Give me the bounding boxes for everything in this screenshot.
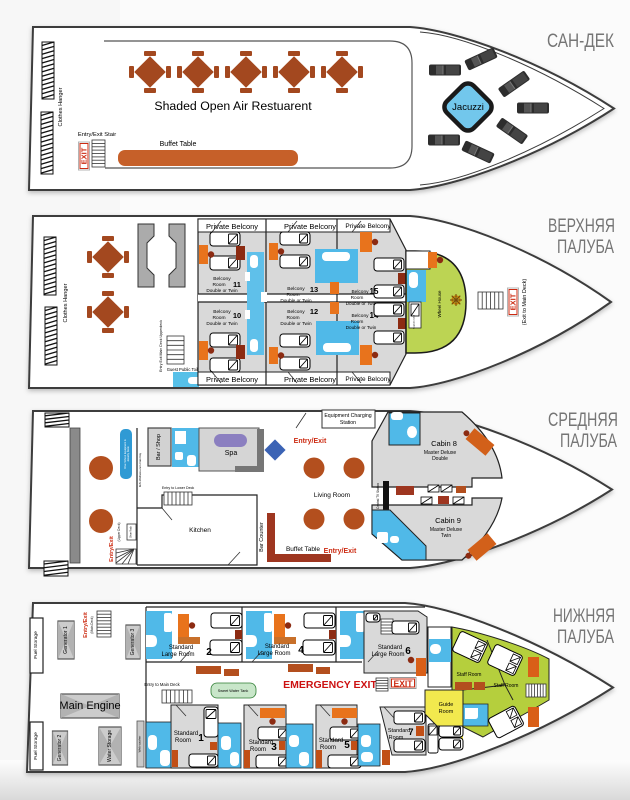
- svg-text:Private Belcony: Private Belcony: [345, 376, 391, 383]
- svg-text:Entry/Exit: Entry/Exit: [294, 438, 327, 445]
- svg-text:Living Room: Living Room: [314, 492, 350, 499]
- svg-text:Kitchen: Kitchen: [189, 527, 211, 534]
- svg-text:15: 15: [370, 287, 379, 296]
- svg-text:Fuel Storage: Fuel Storage: [33, 732, 39, 760]
- svg-text:Room: Room: [250, 747, 266, 753]
- svg-text:Standard: Standard: [319, 738, 343, 744]
- svg-text:Belcony: Belcony: [287, 309, 305, 315]
- svg-text:Shoe Rack: Shoe Rack: [130, 525, 133, 537]
- svg-text:Room: Room: [439, 709, 454, 715]
- svg-text:Belcony: Belcony: [213, 309, 231, 315]
- svg-text:Double or Twin: Double or Twin: [280, 321, 312, 326]
- svg-text:Entry/Exit: Entry/Exit: [83, 612, 89, 638]
- svg-text:Generator 1: Generator 1: [63, 626, 69, 654]
- svg-text:Wheel House: Wheel House: [437, 290, 442, 318]
- svg-text:Captains toilet: Captains toilet: [413, 315, 416, 329]
- svg-text:Standard: Standard: [388, 728, 410, 734]
- svg-text:Main Engine: Main Engine: [59, 700, 120, 712]
- svg-text:10: 10: [233, 311, 241, 320]
- svg-text:3: 3: [271, 742, 277, 753]
- svg-text:Jacuzzi: Jacuzzi: [452, 102, 484, 113]
- svg-text:Entry/Exit: Entry/Exit: [324, 548, 357, 555]
- svg-text:Spa: Spa: [225, 450, 238, 457]
- svg-text:НИЖНЯЯ: НИЖНЯЯ: [553, 605, 615, 627]
- svg-text:Belcony: Belcony: [351, 313, 369, 319]
- svg-text:Staff Room: Staff Room: [457, 672, 482, 678]
- svg-text:(Exit to Main Deck): (Exit to Main Deck): [522, 279, 528, 326]
- svg-text:13: 13: [310, 285, 318, 294]
- svg-text:Large Room: Large Room: [161, 652, 194, 658]
- svg-text:Private Belcony: Private Belcony: [206, 375, 258, 384]
- svg-text:САН-ДЕК: САН-ДЕК: [547, 30, 615, 52]
- svg-text:Standard: Standard: [169, 645, 193, 651]
- svg-text:Buffet Table: Buffet Table: [160, 141, 197, 148]
- svg-text:EMERGENCY EXIT: EMERGENCY EXIT: [283, 679, 377, 691]
- svg-text:Double or Twin: Double or Twin: [346, 325, 377, 330]
- svg-text:Generator 2: Generator 2: [57, 734, 63, 761]
- svg-text:Cabin 9: Cabin 9: [435, 516, 461, 525]
- svg-text:Jewelry Desk: Jewelry Desk: [126, 446, 130, 462]
- svg-text:Clothes Hanger: Clothes Hanger: [63, 283, 69, 322]
- svg-text:Entry/Exit: Entry/Exit: [109, 536, 115, 562]
- svg-text:Web washer: Web washer: [138, 736, 142, 753]
- svg-text:4: 4: [298, 645, 304, 656]
- svg-text:Private Belcony: Private Belcony: [345, 223, 391, 230]
- svg-text:Guest Public Toilet: Guest Public Toilet: [167, 367, 202, 372]
- svg-text:Entry Exit Main Deck Upperdeck: Entry Exit Main Deck Upperdeck: [159, 320, 163, 372]
- svg-text:ПАЛУБА: ПАЛУБА: [557, 236, 614, 258]
- svg-text:Twin: Twin: [441, 533, 452, 539]
- svg-text:EXIT: EXIT: [80, 147, 89, 164]
- svg-text:(Upper Deck): (Upper Deck): [117, 523, 121, 542]
- svg-text:Standard: Standard: [249, 740, 273, 746]
- svg-text:Central TV Station: Central TV Station: [376, 483, 380, 509]
- svg-text:Kid's Wellness-cum Care Day: Kid's Wellness-cum Care Day: [138, 452, 142, 487]
- svg-text:Room: Room: [320, 745, 336, 751]
- svg-text:7: 7: [408, 727, 413, 737]
- svg-text:Station: Station: [340, 420, 356, 426]
- svg-text:Entry/Exit Stair: Entry/Exit Stair: [78, 132, 116, 138]
- svg-text:2: 2: [206, 647, 212, 658]
- svg-text:Equipment Charging: Equipment Charging: [324, 413, 371, 419]
- svg-text:ПАЛУБА: ПАЛУБА: [557, 626, 614, 648]
- svg-text:Room: Room: [389, 735, 404, 741]
- svg-text:Shaded Open Air Restuarent: Shaded Open Air Restuarent: [154, 99, 312, 113]
- svg-text:Sweet Water Tank: Sweet Water Tank: [218, 689, 249, 693]
- svg-text:Belcony: Belcony: [287, 286, 305, 292]
- svg-text:Guide: Guide: [439, 702, 454, 708]
- svg-text:Standard: Standard: [265, 644, 289, 650]
- svg-text:Fuel Storage: Fuel Storage: [33, 631, 39, 659]
- svg-text:Bar / Shop: Bar / Shop: [156, 434, 162, 460]
- svg-text:Entry to Lower Deck: Entry to Lower Deck: [162, 486, 195, 490]
- svg-text:(Main Deck): (Main Deck): [90, 616, 94, 633]
- svg-text:Room: Room: [175, 738, 191, 744]
- svg-text:Belcony: Belcony: [351, 289, 369, 295]
- svg-text:Buffet Table: Buffet Table: [286, 546, 320, 553]
- svg-text:Double or Twin: Double or Twin: [346, 301, 377, 306]
- svg-text:Cabin 8: Cabin 8: [431, 439, 457, 448]
- svg-text:EXIT: EXIT: [509, 293, 518, 310]
- svg-text:Water Storage: Water Storage: [107, 730, 113, 762]
- svg-text:Bar Counter: Bar Counter: [259, 522, 265, 552]
- svg-text:Standard: Standard: [378, 645, 402, 651]
- svg-text:СРЕДНЯЯ: СРЕДНЯЯ: [548, 409, 618, 431]
- svg-text:6: 6: [405, 646, 411, 657]
- svg-text:Generator 3: Generator 3: [130, 628, 136, 655]
- svg-text:Entry to Main Deck: Entry to Main Deck: [144, 682, 180, 687]
- svg-text:Staff Room: Staff Room: [494, 683, 519, 689]
- svg-text:Standard: Standard: [174, 731, 198, 737]
- svg-text:EXIT: EXIT: [394, 679, 414, 689]
- svg-text:Double or Twin: Double or Twin: [280, 298, 312, 303]
- svg-text:ВЕРХНЯЯ: ВЕРХНЯЯ: [548, 215, 615, 237]
- svg-text:1: 1: [198, 733, 204, 744]
- svg-text:Double: Double: [432, 456, 448, 462]
- svg-text:Private Belcony: Private Belcony: [284, 222, 336, 231]
- svg-text:Double or Twin: Double or Twin: [206, 288, 238, 293]
- svg-text:Large Room: Large Room: [257, 651, 290, 657]
- svg-text:ПАЛУБА: ПАЛУБА: [560, 430, 617, 452]
- svg-text:Clothes Hanger: Clothes Hanger: [58, 87, 64, 126]
- svg-text:12: 12: [310, 307, 318, 316]
- svg-text:Belcony: Belcony: [213, 276, 231, 282]
- svg-text:5: 5: [344, 740, 350, 751]
- svg-text:Double or Twin: Double or Twin: [206, 321, 238, 326]
